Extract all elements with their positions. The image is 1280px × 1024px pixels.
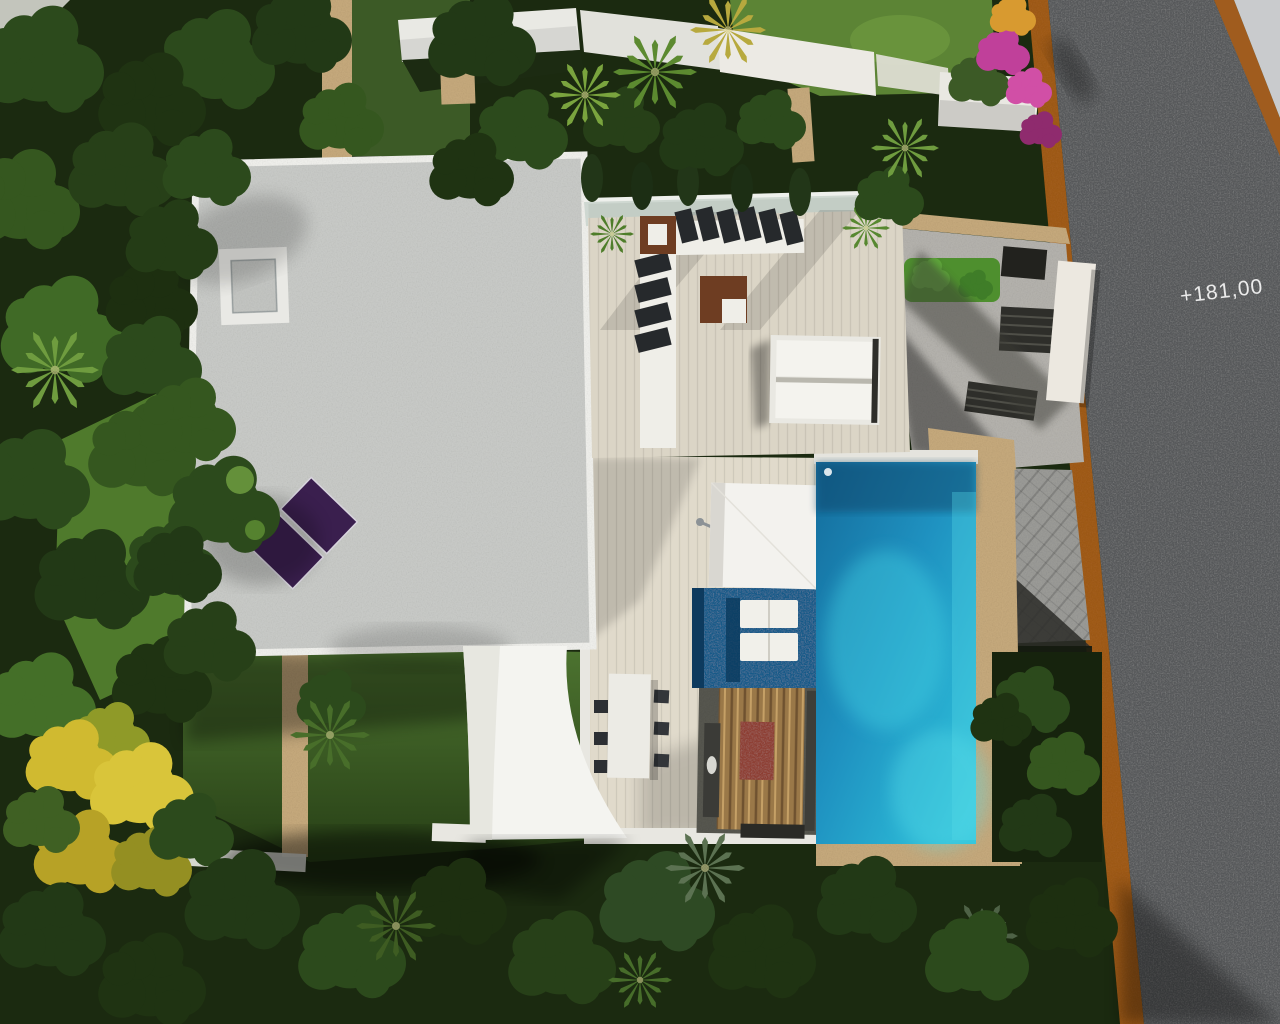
upper-wood-deck [584,190,910,458]
scene-svg [0,0,1280,1024]
kitchen-step [740,824,804,839]
spa-plunge-pool [692,588,820,688]
canopy-highlight [245,520,265,540]
dining-chair [594,700,608,713]
coffee-table [700,276,747,323]
pool-skimmer [824,468,832,476]
parasol-shading [709,483,726,587]
canopy-highlight [226,466,254,494]
daybed-mattress [776,340,875,378]
shadow-overlay [726,598,740,682]
dining-chair [594,760,608,773]
conifer-tree [789,168,811,216]
double-daybed [749,335,881,431]
spa-shadow-edge [692,588,704,688]
water-glow [826,550,946,730]
outdoor-dining-table [607,674,651,779]
daybed-mattress [775,382,874,420]
main-swimming-pool [814,450,990,850]
conifer-tree [731,164,753,212]
shadow-overlay [650,680,658,780]
square-parasol [696,483,819,590]
gate-rail [1001,246,1047,280]
corner-table [640,216,676,254]
conifer-tree [581,154,603,202]
kitchen-runner [739,722,774,781]
conifer-tree [631,162,653,210]
outdoor-kitchen [696,663,833,839]
dining-chair [594,732,608,745]
site-plan-render: +181,00 [0,0,1280,1024]
water-glow [890,730,990,850]
